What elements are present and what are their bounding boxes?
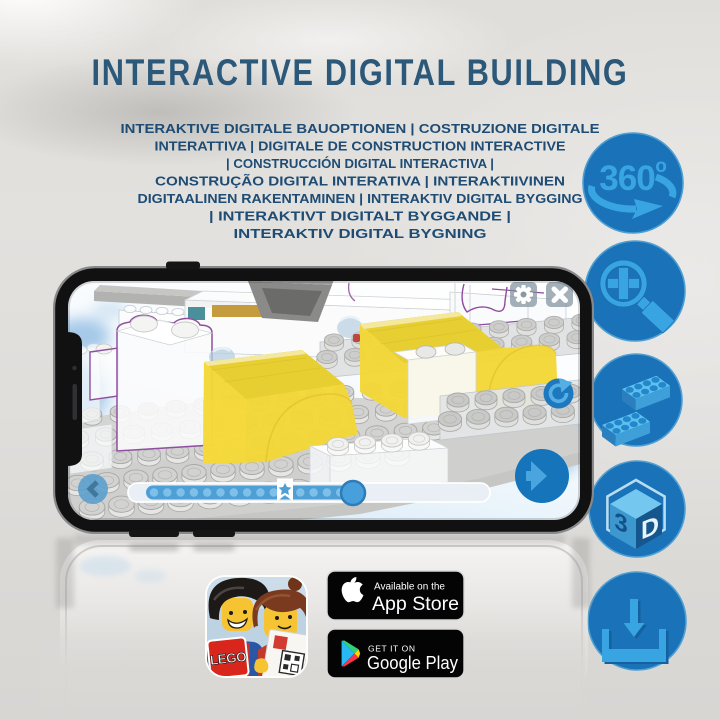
svg-text:| INTERAKTIVT DIGITALT BYGGAND: | INTERAKTIVT DIGITALT BYGGANDE | — [209, 209, 511, 224]
svg-text:GET IT ON: GET IT ON — [368, 644, 416, 654]
svg-text:o: o — [655, 156, 667, 177]
svg-text:Google Play: Google Play — [367, 653, 458, 673]
svg-text:INTERAKTIVE DIGITALE BAUOPTION: INTERAKTIVE DIGITALE BAUOPTIONEN | COSTR… — [121, 121, 600, 136]
svg-text:Available on the: Available on the — [374, 582, 445, 593]
svg-text:3: 3 — [614, 507, 627, 539]
svg-text:App Store: App Store — [372, 593, 459, 615]
svg-text:360: 360 — [599, 159, 655, 198]
svg-text:DIGITAALINEN RAKENTAMINEN | IN: DIGITAALINEN RAKENTAMINEN | INTERAKTIV D… — [138, 191, 583, 206]
svg-text:CONSTRUÇÃO DIGITAL INTERATIVA: CONSTRUÇÃO DIGITAL INTERATIVA | INTERAKT… — [155, 174, 565, 189]
svg-text:INTERAKTIV DIGITAL BYGNING: INTERAKTIV DIGITAL BYGNING — [234, 226, 487, 241]
svg-text:INTERATTIVA | DIGITALE DE CONS: INTERATTIVA | DIGITALE DE CONSTRUCTION I… — [155, 139, 566, 154]
svg-text:INTERACTIVE DIGITAL BUILDING: INTERACTIVE DIGITAL BUILDING — [92, 52, 629, 93]
svg-text:| CONSTRUCCIÓN DIGITAL INTERAC: | CONSTRUCCIÓN DIGITAL INTERACTIVA | — [226, 156, 494, 171]
